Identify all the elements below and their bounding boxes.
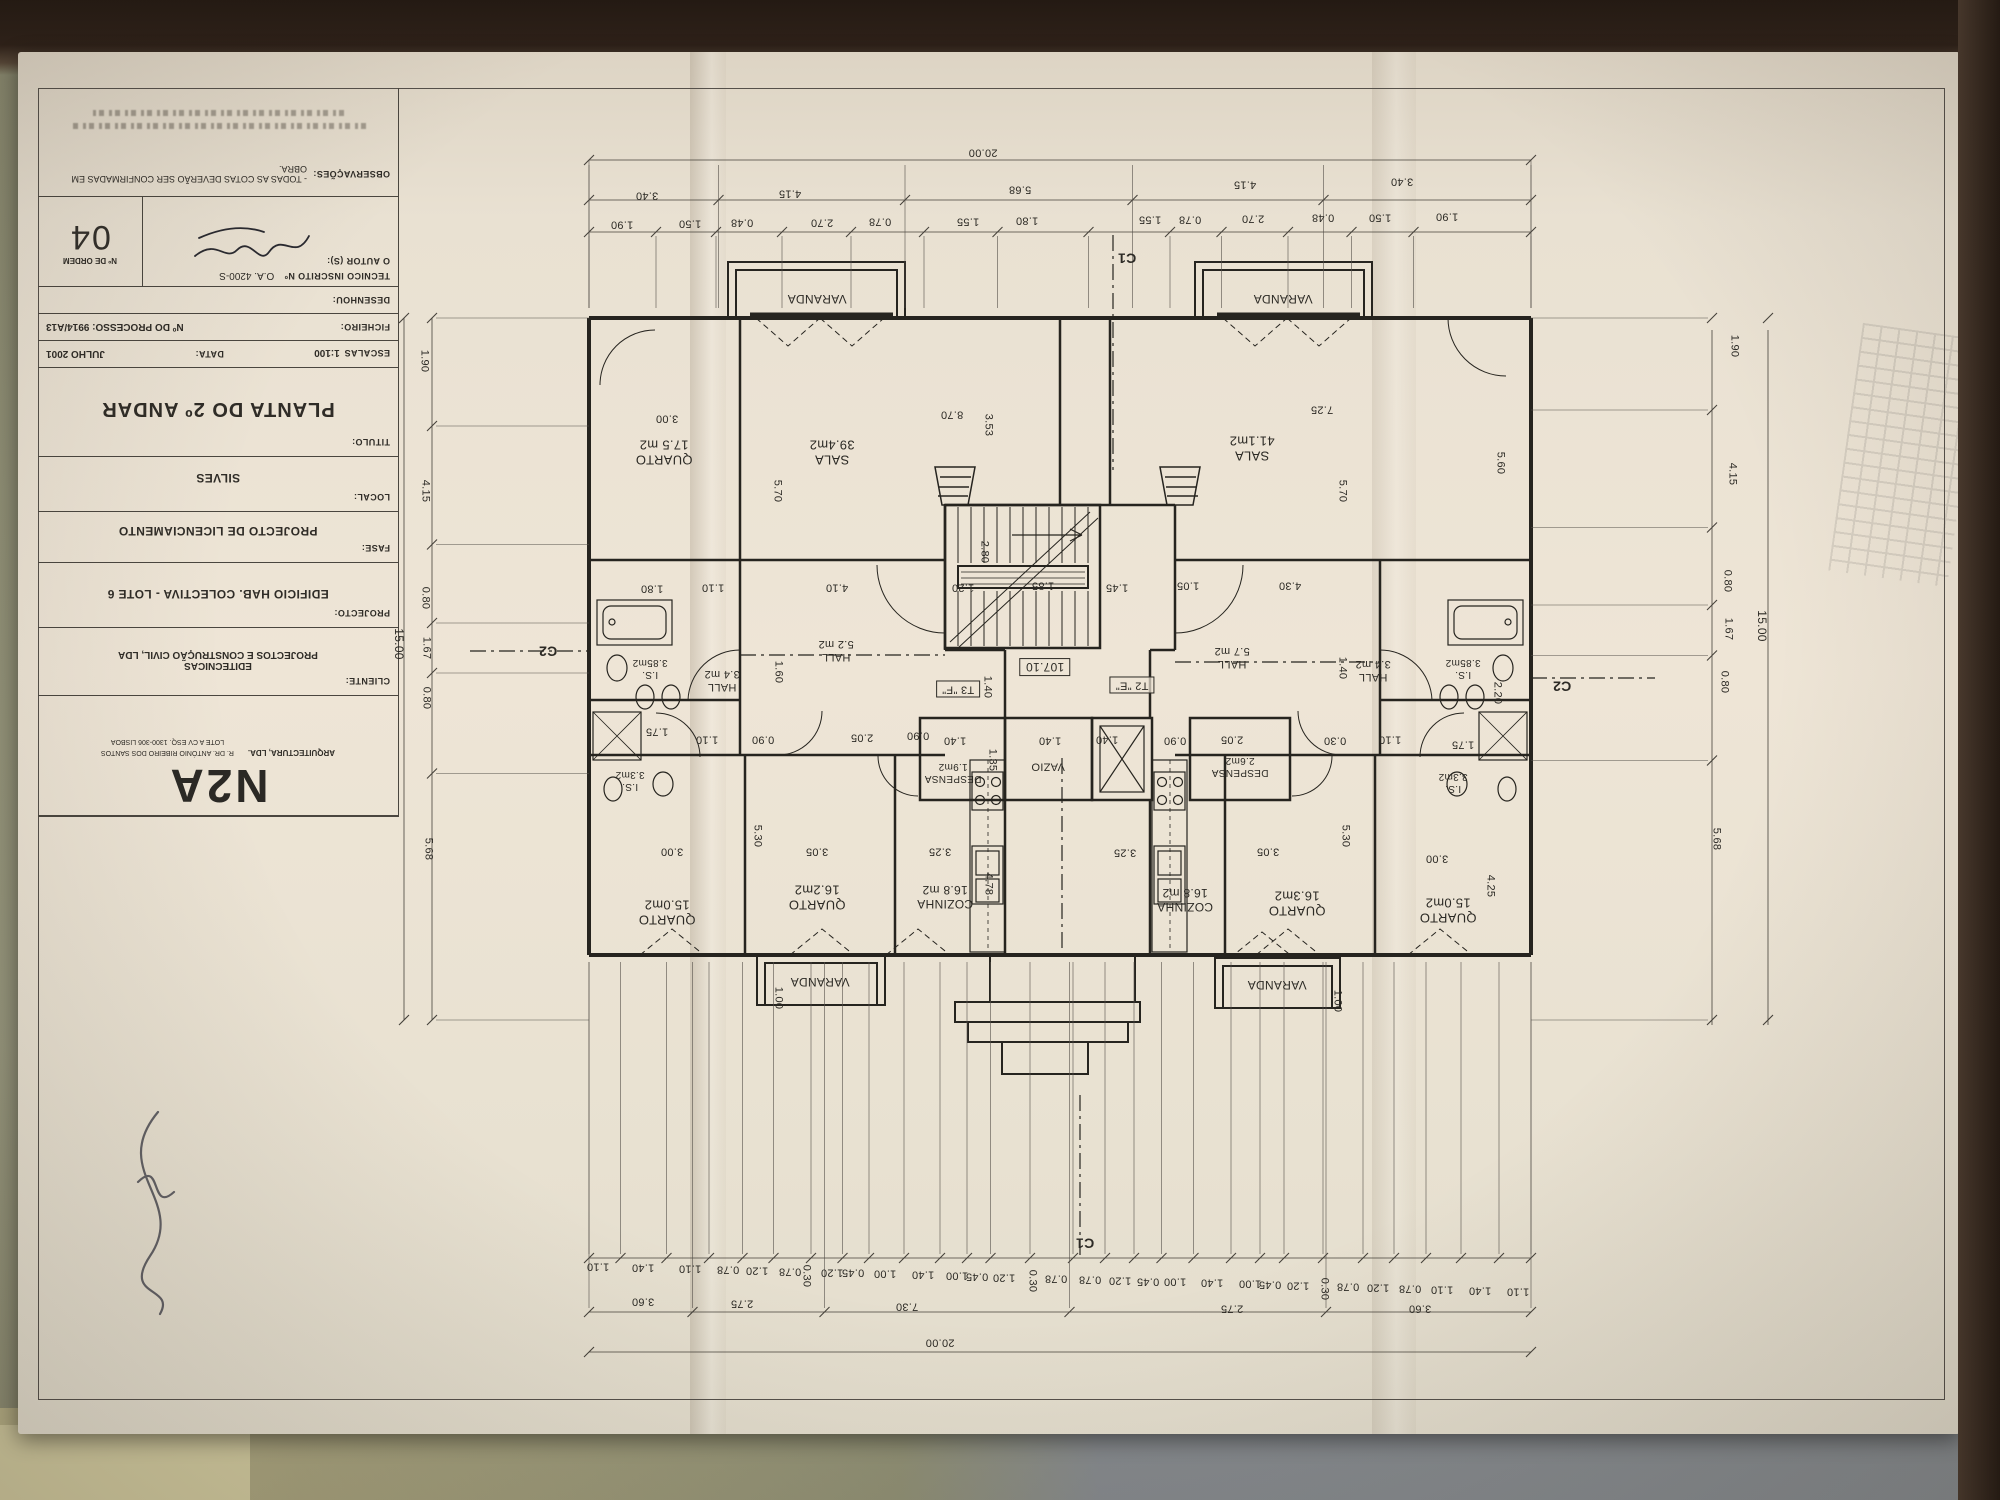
plan-label: 5.68 [422,838,435,861]
plan-label: 1.55 [1139,213,1162,226]
plan-label: HALL 3.4 m2 [704,667,739,693]
plan-label: 1.20 [1287,1279,1310,1292]
plan-label: 1.90 [611,218,634,231]
plan-label: 0.45 [842,1266,865,1279]
plan-label: 3.00 [1426,852,1449,865]
plan-label: 1.00 [772,987,785,1010]
plan-label: 5.70 [1336,480,1349,503]
plan-label: 3.05 [806,845,829,858]
plan-label: 2.75 [731,1297,754,1310]
plan-label: 2.05 [1221,733,1244,746]
plan-label: 1.40 [1469,1284,1492,1297]
plan-label: 1.00 [1331,990,1344,1013]
plan-label: 0.78 [1079,1273,1102,1286]
plan-label: 5.68 [1710,828,1723,851]
plan-label: 0.78 [779,1265,802,1278]
plan-label: SALA 39.4m2 [809,437,854,468]
plan-label: QUARTO 16.3m2 [1269,888,1326,919]
plan-label: 1.10 [587,1260,610,1273]
plan-label: DESPENSA 2.6m2 [1212,754,1269,778]
plan-label: 3.05 [1257,845,1280,858]
plan-label: VARANDA [787,292,846,306]
plan-label: 3.53 [982,414,995,437]
plan-label: COZINHA 16.8 m2 [1157,886,1213,914]
plan-label: 1.40 [981,676,994,699]
plan-label: 2.05 [851,731,874,744]
plan-label: QUARTO 17.5 m2 [636,437,693,468]
plan-label: 2.70 [1242,212,1265,225]
plan-label: 0.48 [1312,211,1335,224]
plan-label: 0.90 [1164,734,1187,747]
plan-label: 0.78 [1045,1272,1068,1285]
plan-label: 20.00 [925,1336,954,1349]
plan-label: C1 [1076,1235,1095,1252]
plan-label: 0.78 [869,215,892,228]
plan-label: 1.10 [1507,1285,1530,1298]
plan-label: 0.78 [1399,1282,1422,1295]
plan-label: 1.50 [1369,211,1392,224]
plan-label: 4.15 [1234,178,1257,191]
plan-label: 0.48 [731,216,754,229]
plan-label: 0.45 [966,1270,989,1283]
plan-label: 0.80 [1721,570,1734,593]
plan-label: 1.80 [641,582,664,595]
plan-label: QUARTO 15.0m2 [1420,895,1477,926]
plan-label: 1.20 [1367,1281,1390,1294]
plan-label: 0.90 [752,733,775,746]
plan-label: 1.40 [1039,734,1062,747]
plan-label: 0.78 [717,1263,740,1276]
plan-label: VARANDA [1253,292,1312,306]
plan-label: 1.40 [1096,733,1119,746]
plan-label: 5.30 [1339,825,1352,848]
plan-label: 1.50 [679,217,702,230]
plan-label: I.S. 3.3m2 [1438,770,1467,794]
plan-label: 8.70 [941,408,964,421]
plan-label: 1.00 [1164,1275,1187,1288]
plan-label: 1.85 [1032,579,1055,592]
plan-label: 0.30 [800,1265,813,1288]
plan-label: 1.90 [1436,210,1459,223]
plan-label: C2 [1553,678,1572,695]
plan-label: 20.00 [968,146,997,159]
plan-label: 0.30 [1318,1278,1331,1301]
plan-label: 1.60 [772,661,785,684]
plan-label: 3.00 [661,845,684,858]
plan-label: HALL 3.4 m2 [1355,657,1390,683]
plan-label: 4.30 [1279,579,1302,592]
plan-label: 1.10 [679,1262,702,1275]
plan-label: 1.20 [993,1271,1016,1284]
plan-label: T2 "E" [1110,677,1155,694]
plan-label: SALA 41.1m2 [1229,433,1274,464]
plan-label: HALL 5.2 m2 [818,637,853,663]
plan-label: 0.78 [1337,1280,1360,1293]
plan-label: 0.45 [1259,1278,1282,1291]
plan-label: DESPENSA 1.9m2 [925,760,982,784]
plan-label: 1.20 [952,581,975,594]
plan-label: 3.25 [1114,846,1137,859]
plan-label: HALL 5.7 m2 [1214,644,1249,670]
plan-label: QUARTO 16.2m2 [789,882,846,913]
plan-label: 2.80 [978,541,991,564]
plan-label: 0.30 [1026,1270,1039,1293]
plan-label: 15.00 [1755,610,1769,642]
plan-label: 1.10 [696,733,719,746]
plan-label: I.S. 3.85m2 [632,656,667,680]
plan-label: 3.40 [1391,175,1414,188]
plan-label: 1.90 [1728,335,1741,358]
plan-label: 4.78 [982,873,995,896]
plan-label: 1.75 [1452,738,1475,751]
plan-label: 1.40 [944,734,967,747]
plan-label: 5.60 [1494,452,1507,475]
plan-label: 0.80 [1718,671,1731,694]
plan-label: 1.40 [912,1268,935,1281]
plan-label: QUARTO 15.0m2 [639,897,696,928]
plan-label: 3.60 [632,1295,655,1308]
plan-label: 5.68 [1009,183,1032,196]
plan-label: C1 [1118,250,1137,267]
photographed-floor-plan: OBSERVAÇÕES: - TODAS AS COTAS DEVERÃO SE… [0,0,2000,1500]
plan-label: 1.55 [957,215,980,228]
plan-label: T3 "F" [936,681,980,698]
plan-label: I.S. 3.85m2 [1445,656,1480,680]
plan-label: 5.70 [771,480,784,503]
plan-label: 0.45 [1137,1275,1160,1288]
plan-label: 4.10 [826,581,849,594]
plan-label: 1.10 [702,581,725,594]
plan-label: COZINHA 16.8 m2 [917,883,973,911]
plan-label: 1.20 [821,1266,844,1279]
plan-label: VARANDA [790,975,849,989]
plan-label: 1.20 [1109,1274,1132,1287]
plan-label: 3.00 [656,412,679,425]
plan-label: 1.90 [418,350,431,373]
plan-label: 4.15 [419,480,432,503]
plan-label: 1.20 [746,1264,769,1277]
plan-label: 15.00 [392,628,406,660]
plan-label: 4.15 [1726,463,1739,486]
plan-label: 0.30 [1324,734,1347,747]
plan-label: 107.10 [1020,658,1071,676]
plan-label: 1.10 [1431,1283,1454,1296]
plan-label: VAZIO [1031,760,1065,773]
plan-label: 1.40 [1336,657,1349,680]
plan-label: I.S. 3.3m2 [615,768,644,792]
plan-label: 3.40 [636,189,659,202]
plan-label: 1.05 [1177,579,1200,592]
plan-label: 1.75 [646,725,669,738]
plan-label: 1.45 [1106,581,1129,594]
plan-label-layer: VARANDAVARANDAQUARTO 17.5 m2SALA 39.4m2S… [0,0,2000,1500]
plan-label: 0.80 [420,687,433,710]
plan-label: 7.30 [896,1300,919,1313]
plan-label: 2.70 [811,216,834,229]
plan-label: 7.25 [1311,403,1334,416]
plan-label: 4.15 [779,187,802,200]
plan-label: 1.35 [986,749,999,772]
plan-label: 5.30 [751,825,764,848]
plan-label: 1.80 [1016,214,1039,227]
plan-label: 1.10 [1379,733,1402,746]
plan-label: 0.80 [419,587,432,610]
plan-label: 3.25 [929,845,952,858]
plan-label: 0.78 [1179,213,1202,226]
plan-label: 2.75 [1221,1302,1244,1315]
plan-label: 1.40 [1201,1276,1224,1289]
plan-label: C2 [539,643,558,660]
plan-label: 1.40 [632,1261,655,1274]
plan-label: 3.60 [1409,1302,1432,1315]
plan-label: 2.20 [1491,682,1504,705]
plan-label: VARANDA [1247,978,1306,992]
plan-label: 1.00 [874,1267,897,1280]
plan-label: 4.25 [1484,875,1497,898]
plan-label: 1.67 [420,637,433,660]
plan-label: 1.67 [1722,618,1735,641]
plan-label: 0.90 [907,729,930,742]
